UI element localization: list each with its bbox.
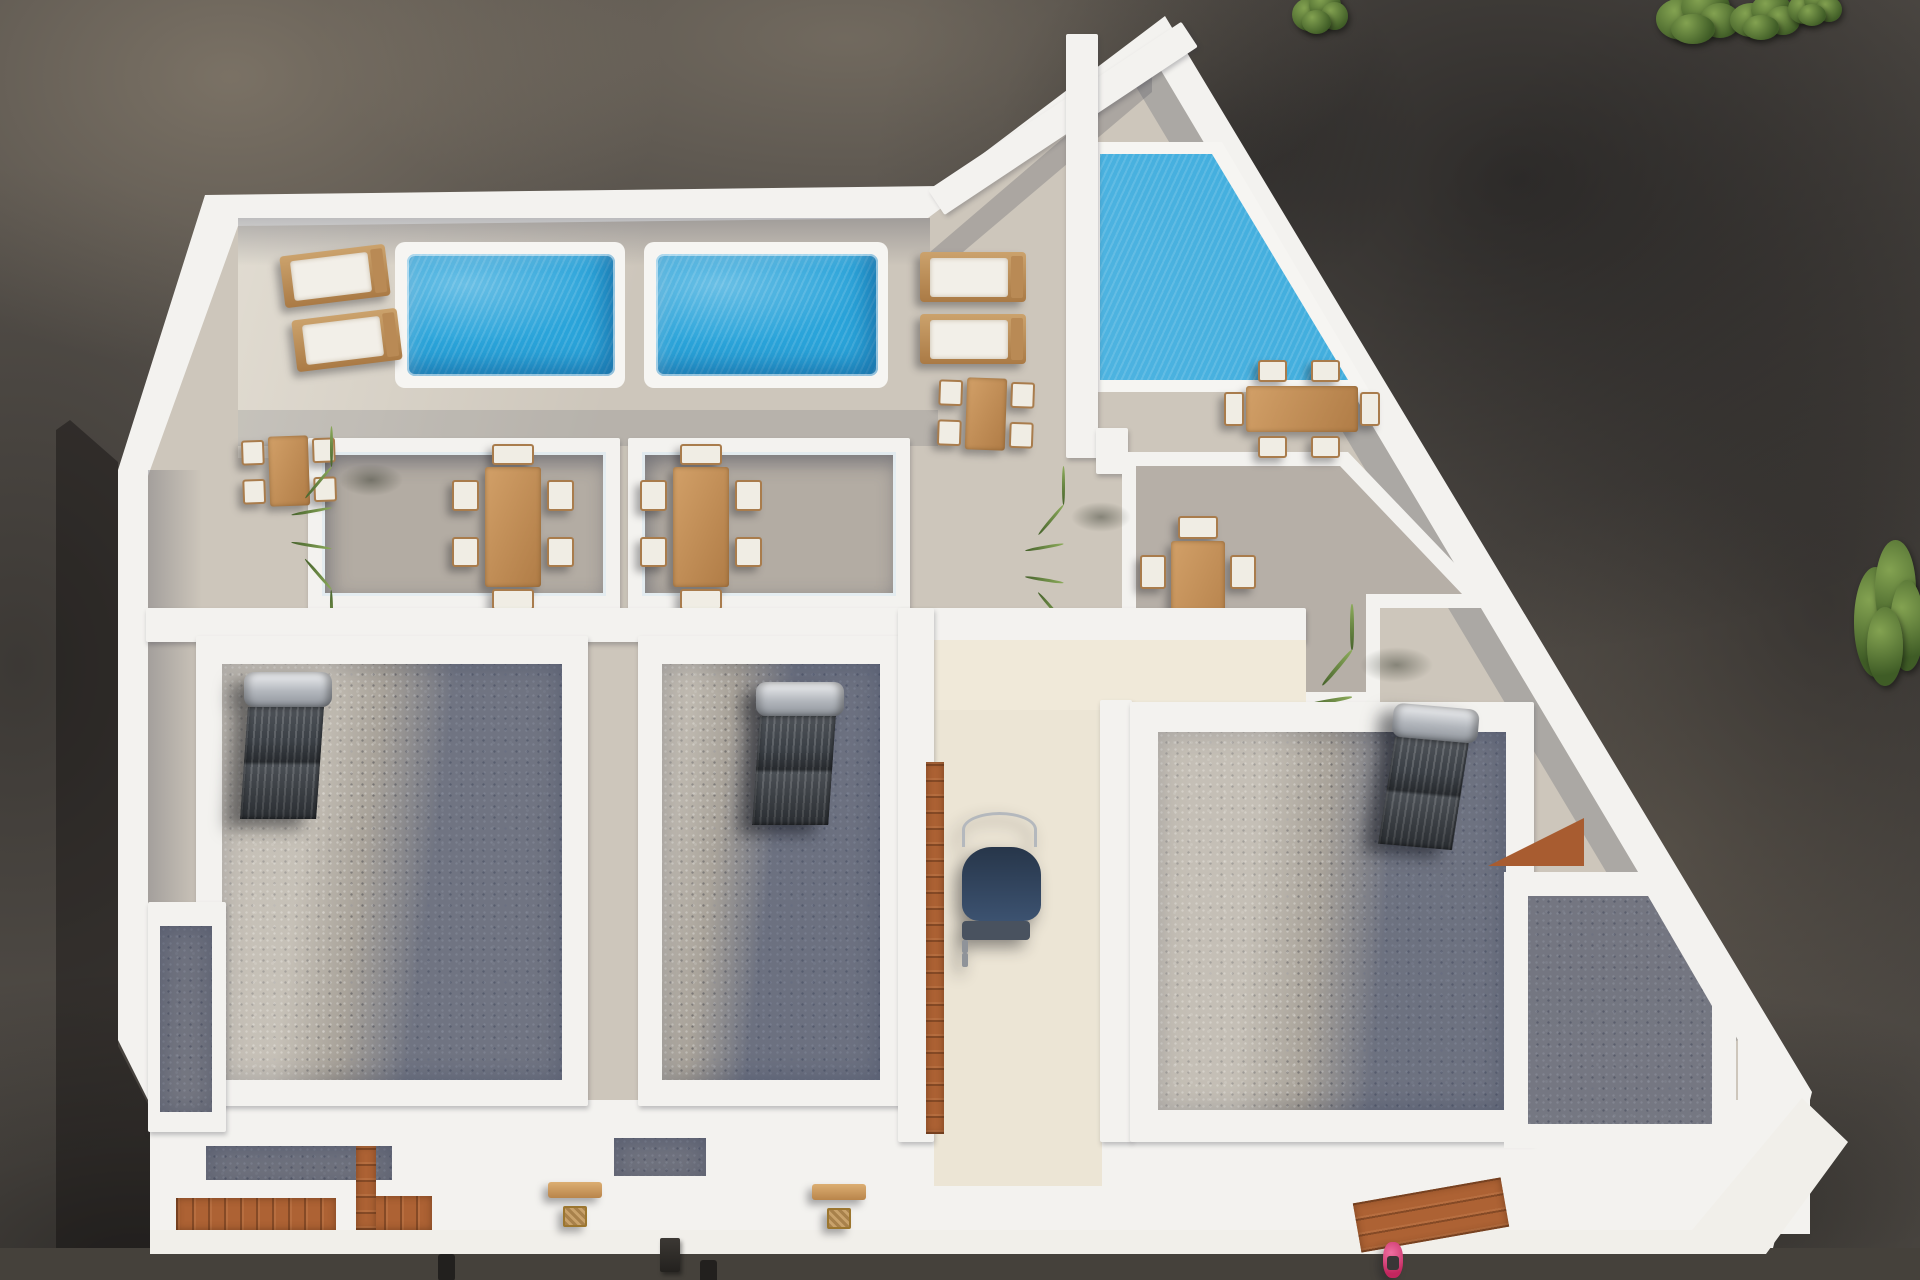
triangle-divider-wall xyxy=(1066,34,1098,458)
bush-lobe xyxy=(1671,14,1715,44)
chair xyxy=(1010,382,1035,409)
dining-set-small-b xyxy=(934,364,1037,463)
dining-set-long-b xyxy=(640,446,762,608)
dining-set-small-a xyxy=(238,422,339,519)
solar-tank-cylinder xyxy=(244,672,332,707)
bush-top-b xyxy=(1656,0,1740,46)
chair xyxy=(452,537,479,568)
bush-lobe xyxy=(1302,10,1331,34)
sun-lounger-b1 xyxy=(920,252,1026,302)
sidewalk-post xyxy=(660,1238,680,1272)
solar-heater-a xyxy=(244,672,332,818)
wood-deck-a xyxy=(176,1198,336,1230)
roof-shade-overlay xyxy=(160,926,212,1112)
chair xyxy=(735,480,762,511)
table-top xyxy=(268,436,310,507)
chair xyxy=(640,537,667,568)
car-street-b xyxy=(700,1260,912,1280)
car-hood-arc xyxy=(962,812,1037,847)
chair xyxy=(1258,436,1287,458)
roof-a-balcony-gravel xyxy=(160,926,212,1112)
chair xyxy=(242,478,266,504)
chair xyxy=(938,380,963,407)
solar-collector-panel xyxy=(1378,736,1469,849)
plant-leaf xyxy=(330,426,333,467)
table-top xyxy=(965,378,1007,450)
chair xyxy=(241,440,265,466)
car-rear-window xyxy=(962,921,1030,940)
chair xyxy=(680,589,721,610)
bush-east xyxy=(1854,540,1920,692)
roof-shade-overlay xyxy=(614,1138,706,1176)
table-top xyxy=(673,467,729,587)
chair xyxy=(1178,516,1217,539)
wood-wall-strip xyxy=(356,1146,376,1230)
pool-middle-water xyxy=(656,254,878,376)
car-street-a xyxy=(438,1254,650,1280)
chair xyxy=(1258,360,1287,382)
car-mirror xyxy=(962,940,968,954)
lounger-cushion xyxy=(930,258,1008,297)
dining-set-wide xyxy=(1226,360,1378,458)
driveway-wood-plank xyxy=(926,762,944,1134)
table-top xyxy=(485,467,541,587)
chair xyxy=(680,444,721,465)
solar-tank-cylinder xyxy=(756,682,844,716)
car-mirror xyxy=(962,953,968,967)
sun-lounger-b2 xyxy=(920,314,1026,364)
chair xyxy=(1360,392,1380,425)
bush-top-a xyxy=(1292,0,1348,36)
scooter xyxy=(1378,1238,1408,1280)
woven-stool xyxy=(563,1206,587,1227)
solar-collector-panel xyxy=(752,716,835,825)
potted-plant-c xyxy=(1350,604,1436,690)
bush-top-d xyxy=(1788,0,1842,28)
scooter-seat xyxy=(1387,1256,1399,1269)
bench-table-top xyxy=(812,1184,866,1200)
wood-deck-b xyxy=(368,1196,432,1230)
aerial-render-canvas xyxy=(0,0,1920,1280)
bush-lobe xyxy=(1798,4,1826,26)
chair xyxy=(492,444,533,465)
pool-west-water xyxy=(407,254,615,376)
lounger-cushion xyxy=(930,320,1008,359)
solar-heater-c xyxy=(1382,703,1480,850)
chair xyxy=(547,480,574,511)
chair xyxy=(1311,360,1340,382)
chair xyxy=(452,480,479,511)
bush-lobe xyxy=(1867,607,1903,686)
car-windshield xyxy=(962,847,1041,920)
lounger-headrest xyxy=(1011,318,1023,360)
plant-leaf xyxy=(1350,604,1354,650)
chair xyxy=(1224,392,1244,425)
patio-set-b xyxy=(812,1184,866,1232)
table-top xyxy=(1246,386,1358,431)
chair xyxy=(937,419,962,446)
chair xyxy=(1311,436,1340,458)
chair xyxy=(492,589,533,610)
bench-table-top xyxy=(548,1182,602,1198)
car-wheel xyxy=(438,1254,455,1280)
woven-stool xyxy=(827,1208,851,1229)
potted-plant-b xyxy=(1062,466,1134,538)
dining-set-long-a xyxy=(452,446,574,608)
balcony-gravel-sliver-b xyxy=(614,1138,706,1176)
car-wheel xyxy=(700,1260,717,1280)
lounger-headrest xyxy=(1011,256,1023,298)
chair xyxy=(547,537,574,568)
car-driveway xyxy=(962,812,1054,1084)
solar-heater-b xyxy=(756,682,844,824)
chair xyxy=(1140,555,1166,589)
chair xyxy=(735,537,762,568)
chair xyxy=(1009,422,1034,449)
bush-lobe xyxy=(1743,15,1779,40)
chair xyxy=(640,480,667,511)
potted-plant-a xyxy=(330,426,406,502)
solar-collector-panel xyxy=(240,707,324,819)
patio-set-a xyxy=(548,1182,602,1230)
driveway-east-wall xyxy=(1100,700,1132,1142)
chair xyxy=(1230,555,1256,589)
plant-leaf xyxy=(1062,466,1065,505)
